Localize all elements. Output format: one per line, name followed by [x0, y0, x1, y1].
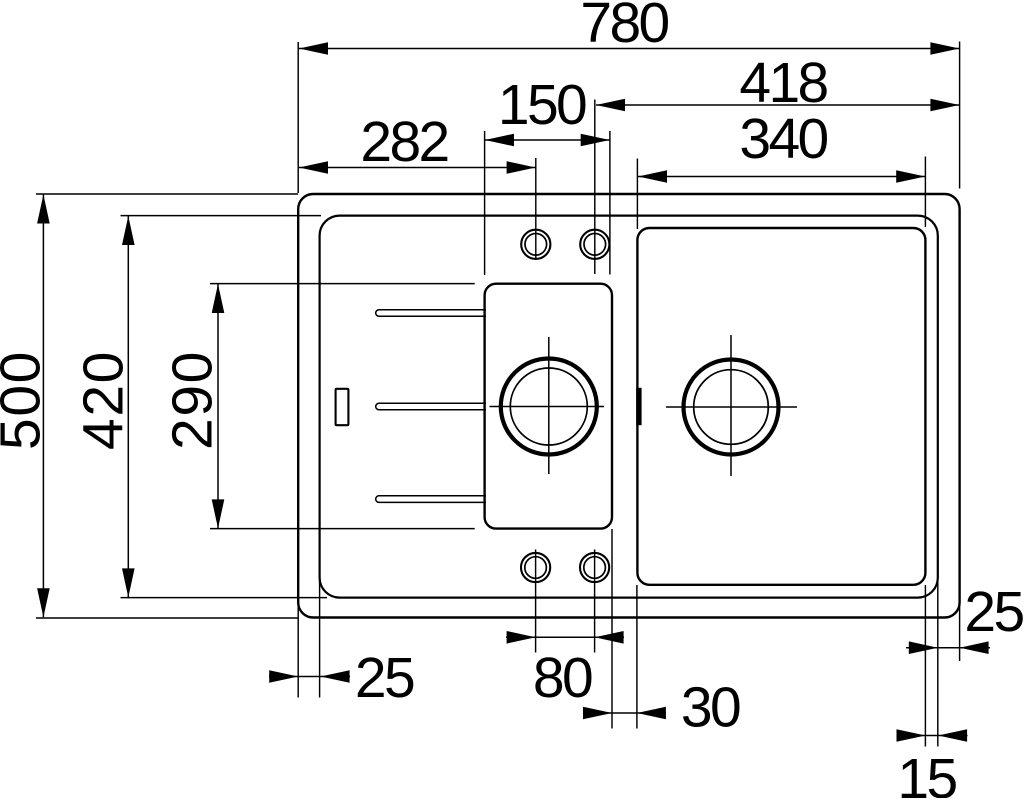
svg-text:282: 282: [360, 110, 447, 174]
svg-text:150: 150: [498, 73, 586, 137]
svg-text:340: 340: [739, 107, 827, 171]
svg-text:420: 420: [72, 350, 136, 450]
svg-text:780: 780: [580, 0, 668, 55]
svg-text:290: 290: [161, 350, 225, 450]
svg-text:418: 418: [739, 51, 827, 115]
svg-text:25: 25: [355, 646, 414, 710]
svg-text:15: 15: [897, 747, 956, 798]
svg-text:25: 25: [964, 580, 1023, 644]
svg-text:500: 500: [0, 350, 53, 450]
svg-text:30: 30: [681, 676, 740, 740]
svg-text:80: 80: [533, 646, 592, 710]
